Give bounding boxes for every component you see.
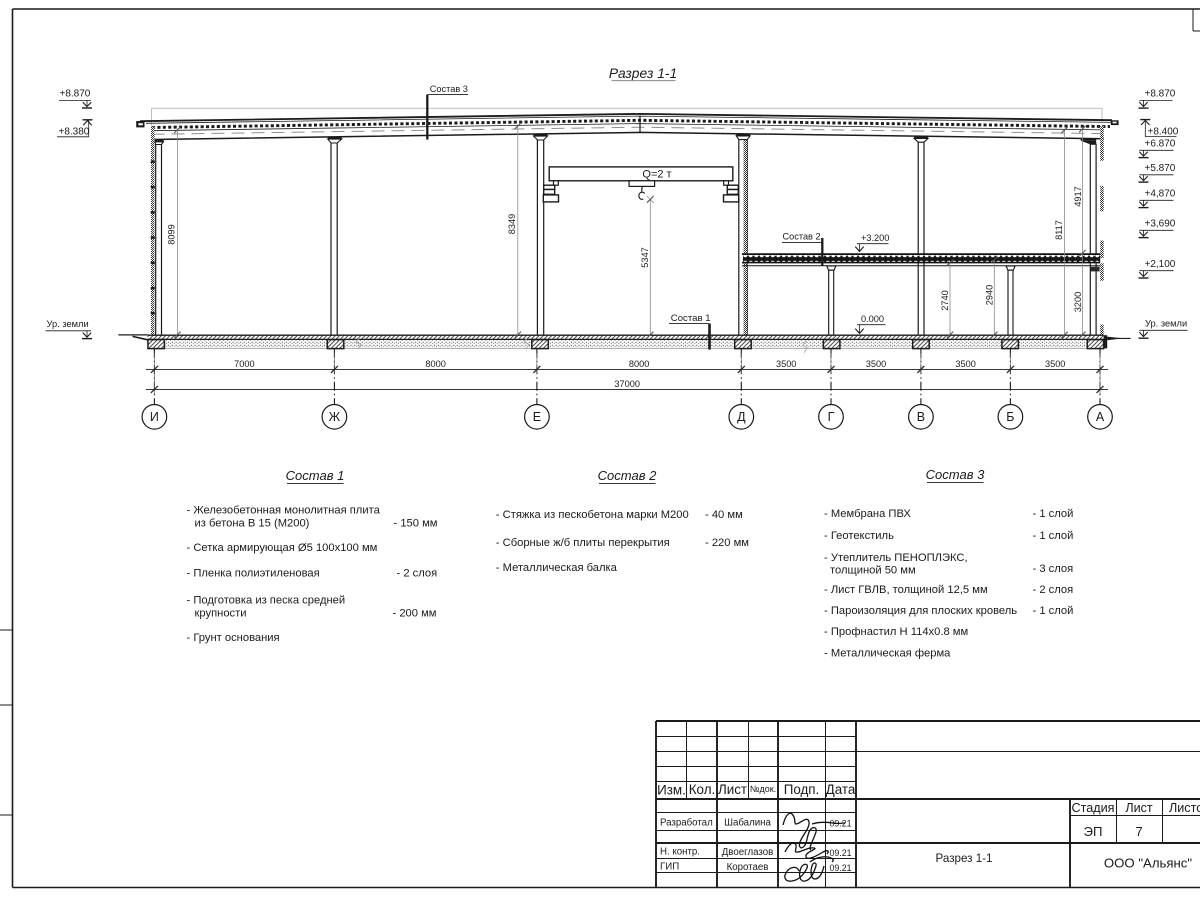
- svg-text:- Сетка армирующая Ø5 100x100: - Сетка армирующая Ø5 100x100 мм: [187, 542, 378, 554]
- svg-text:№док.: №док.: [750, 784, 776, 794]
- svg-text:+2,100: +2,100: [1145, 259, 1176, 270]
- svg-text:ЭП: ЭП: [1084, 824, 1103, 839]
- svg-text:- Геотекстиль: - Геотекстиль: [824, 530, 894, 542]
- svg-text:Q=2 т: Q=2 т: [642, 169, 671, 181]
- svg-text:Г: Г: [828, 410, 835, 424]
- svg-text:Лист: Лист: [718, 782, 747, 797]
- svg-text:Коротаев: Коротаев: [727, 862, 769, 873]
- svg-text:3500: 3500: [866, 359, 886, 369]
- svg-text:Состав 3: Состав 3: [926, 467, 985, 482]
- svg-text:- Профнастил Н 114х0.8 мм: - Профнастил Н 114х0.8 мм: [824, 626, 968, 638]
- svg-text:4917: 4917: [1073, 186, 1083, 206]
- svg-text:8117: 8117: [1054, 220, 1064, 240]
- svg-text:- 1 слой: - 1 слой: [1033, 605, 1074, 617]
- svg-text:А: А: [1096, 410, 1105, 424]
- svg-text:толщиной 50 мм: толщиной 50 мм: [830, 565, 916, 577]
- svg-text:Разрез 1-1: Разрез 1-1: [609, 66, 677, 81]
- svg-text:3500: 3500: [955, 359, 975, 369]
- svg-text:- Утеплитель ПЕНОПЛЭКС,: - Утеплитель ПЕНОПЛЭКС,: [824, 552, 968, 564]
- svg-text:8000: 8000: [629, 359, 649, 369]
- svg-text:Н. контр.: Н. контр.: [660, 847, 700, 858]
- svg-text:Б: Б: [1006, 410, 1014, 424]
- svg-text:Разработал: Разработал: [660, 818, 713, 829]
- svg-text:Двоеглазов: Двоеглазов: [722, 847, 774, 858]
- svg-text:Кол.: Кол.: [689, 782, 716, 797]
- svg-text:+3,690: +3,690: [1145, 219, 1176, 230]
- svg-text:- 1 слой: - 1 слой: [1033, 530, 1074, 542]
- svg-text:7000: 7000: [234, 359, 254, 369]
- svg-text:Стадия: Стадия: [1072, 801, 1115, 815]
- svg-text:Изм.: Изм.: [657, 782, 686, 797]
- svg-text:- Стяжка из пескобетона марки: - Стяжка из пескобетона марки М200: [496, 509, 689, 521]
- svg-text:В: В: [917, 410, 925, 424]
- svg-text:Состав 3: Состав 3: [430, 84, 468, 94]
- svg-text:2940: 2940: [984, 285, 994, 305]
- svg-text:8099: 8099: [167, 224, 177, 244]
- svg-text:И: И: [150, 410, 159, 424]
- svg-text:Состав 2: Состав 2: [783, 232, 821, 242]
- svg-text:Разрез 1-1: Разрез 1-1: [936, 852, 993, 865]
- svg-text:Ур. земли: Ур. земли: [1145, 319, 1187, 329]
- svg-text:+8.400: +8.400: [1148, 126, 1179, 137]
- svg-text:- 1 слой: - 1 слой: [1033, 508, 1074, 520]
- svg-text:Ур. земли: Ур. земли: [47, 319, 89, 329]
- svg-text:- Металлическая ферма: - Металлическая ферма: [824, 648, 951, 660]
- svg-text:- Пароизоляция для плоских кро: - Пароизоляция для плоских кровель: [824, 605, 1017, 617]
- svg-text:Состав 2: Состав 2: [598, 468, 657, 483]
- svg-text:- 2 слоя: - 2 слоя: [397, 567, 438, 579]
- svg-text:5347: 5347: [640, 247, 650, 267]
- svg-text:Состав 1: Состав 1: [286, 468, 345, 483]
- svg-text:- Пленка полиэтиленовая: - Пленка полиэтиленовая: [187, 567, 320, 579]
- svg-text:Подп.: Подп.: [784, 782, 820, 797]
- svg-text:3500: 3500: [1045, 359, 1065, 369]
- svg-text:крупности: крупности: [195, 607, 247, 619]
- svg-text:ГИП: ГИП: [660, 862, 679, 873]
- svg-text:- Железобетонная монолитная п: - Железобетонная монолитная плита: [187, 505, 381, 517]
- svg-text:- Лист ГВЛВ, толщиной 12,5 мм: - Лист ГВЛВ, толщиной 12,5 мм: [824, 584, 988, 596]
- svg-text:+6.870: +6.870: [1145, 139, 1176, 150]
- svg-text:- Мембрана ПВХ: - Мембрана ПВХ: [824, 508, 911, 520]
- svg-text:- Подготовка из песка средней: - Подготовка из песка средней: [187, 595, 346, 607]
- svg-text:+5.870: +5.870: [1145, 163, 1176, 174]
- svg-text:Состав 1: Состав 1: [671, 313, 711, 324]
- svg-text:+4,870: +4,870: [1145, 189, 1176, 200]
- svg-text:- Металлическая балка: - Металлическая балка: [496, 562, 618, 574]
- svg-text:Д: Д: [737, 410, 746, 424]
- svg-text:ООО "Альянс": ООО "Альянс": [1104, 856, 1192, 871]
- svg-text:- Грунт основания: - Грунт основания: [187, 632, 280, 644]
- svg-text:2740: 2740: [940, 290, 950, 310]
- svg-text:8000: 8000: [425, 359, 445, 369]
- svg-text:+3.200: +3.200: [861, 233, 889, 243]
- svg-text:- 3 слоя: - 3 слоя: [1033, 563, 1074, 575]
- svg-text:Е: Е: [533, 410, 541, 424]
- svg-text:- 40 мм: - 40 мм: [705, 509, 743, 521]
- svg-text:37000: 37000: [614, 379, 640, 389]
- svg-text:3200: 3200: [1073, 292, 1083, 312]
- svg-text:Дата: Дата: [826, 782, 856, 797]
- svg-text:+8.870: +8.870: [1145, 89, 1176, 100]
- svg-text:Лист: Лист: [1125, 801, 1153, 815]
- svg-text:- 220 мм: - 220 мм: [705, 537, 749, 549]
- svg-text:Листов: Листов: [1169, 801, 1200, 815]
- svg-text:+8.380: +8.380: [59, 127, 90, 138]
- svg-text:- 150 мм: - 150 мм: [394, 518, 438, 530]
- svg-text:из бетона В 15 (М200): из бетона В 15 (М200): [195, 518, 310, 530]
- svg-text:0.000: 0.000: [861, 314, 884, 324]
- svg-text:7: 7: [1135, 824, 1142, 839]
- svg-text:Шабалина: Шабалина: [724, 818, 771, 829]
- svg-text:09.21: 09.21: [829, 863, 851, 873]
- svg-text:- Сборные ж/б плиты перекрытия: - Сборные ж/б плиты перекрытия: [496, 537, 670, 549]
- svg-text:- 2 слоя: - 2 слоя: [1033, 584, 1074, 596]
- svg-text:8349: 8349: [507, 214, 517, 234]
- svg-text:3500: 3500: [776, 359, 796, 369]
- svg-text:09.21: 09.21: [829, 848, 851, 858]
- svg-text:+8.870: +8.870: [60, 89, 91, 100]
- svg-text:- 200 мм: - 200 мм: [393, 607, 437, 619]
- svg-text:Ж: Ж: [329, 410, 341, 424]
